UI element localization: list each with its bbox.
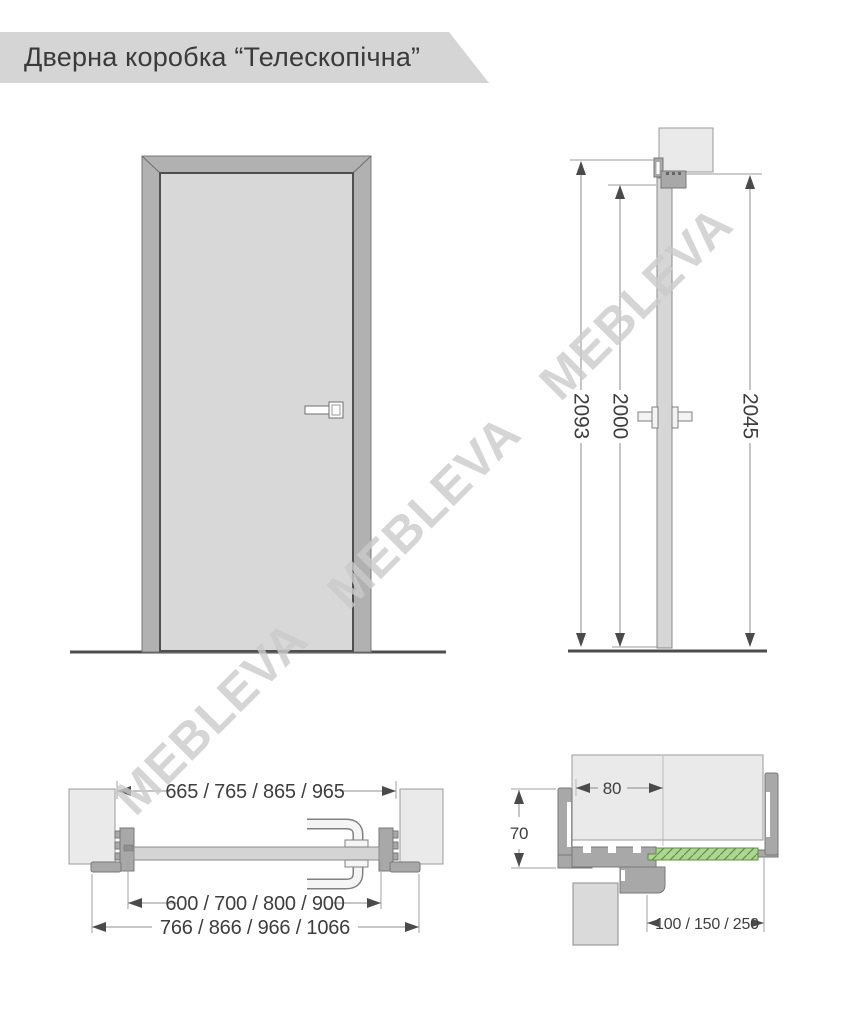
casing-right <box>765 773 778 855</box>
frame-stop-section <box>620 867 665 893</box>
dim-door-width: 600 / 700 / 800 / 900 <box>128 893 381 915</box>
wall-section <box>572 755 763 840</box>
dim-frame-width-label: 665 / 765 / 865 / 965 <box>165 781 344 803</box>
plan-view: 665 / 765 / 865 / 965 600 / 700 / 800 / … <box>69 781 443 939</box>
wall-section-right <box>400 789 443 864</box>
dim-casing-width: 70 <box>510 789 556 868</box>
dim-frame-width: 665 / 765 / 865 / 965 <box>117 781 396 803</box>
architrave-right <box>390 862 420 872</box>
frame-jamb-section <box>572 846 656 867</box>
dim-door-height: 2045 <box>739 175 762 647</box>
extension-strip <box>648 848 758 860</box>
dim-opening-height-label: 2000 <box>609 393 632 439</box>
door-leaf-edge <box>657 178 672 648</box>
architrave-left <box>91 862 121 872</box>
door-leaf-plan <box>134 847 379 860</box>
dim-casing-width-label: 70 <box>510 824 529 843</box>
door-frame-drawing: 2093 2000 2045 <box>0 0 853 1024</box>
dim-extension-width-label: 100 / 150 / 250 <box>655 916 759 933</box>
dim-frame-depth-label: 80 <box>603 779 622 798</box>
dim-frame-height: 2093 <box>570 161 593 647</box>
wall-section-left <box>69 789 115 864</box>
wall-section <box>659 128 713 172</box>
door-leaf-section <box>573 883 618 945</box>
hinge-plate <box>124 845 133 851</box>
front-view <box>70 156 446 652</box>
detail-view: 80 70 100 / 150 / 250 <box>510 755 778 945</box>
dim-opening-height: 2000 <box>609 185 632 647</box>
dim-overall-width-label: 766 / 866 / 966 / 1066 <box>160 917 350 939</box>
dim-door-height-label: 2045 <box>739 393 762 439</box>
dim-overall-width: 766 / 866 / 966 / 1066 <box>92 917 419 939</box>
dim-frame-height-label: 2093 <box>570 393 593 439</box>
side-view: 2093 2000 2045 <box>568 128 767 651</box>
page: Дверна коробка “Телескопічна” <box>0 0 853 1024</box>
dim-door-width-label: 600 / 700 / 800 / 900 <box>165 893 344 915</box>
